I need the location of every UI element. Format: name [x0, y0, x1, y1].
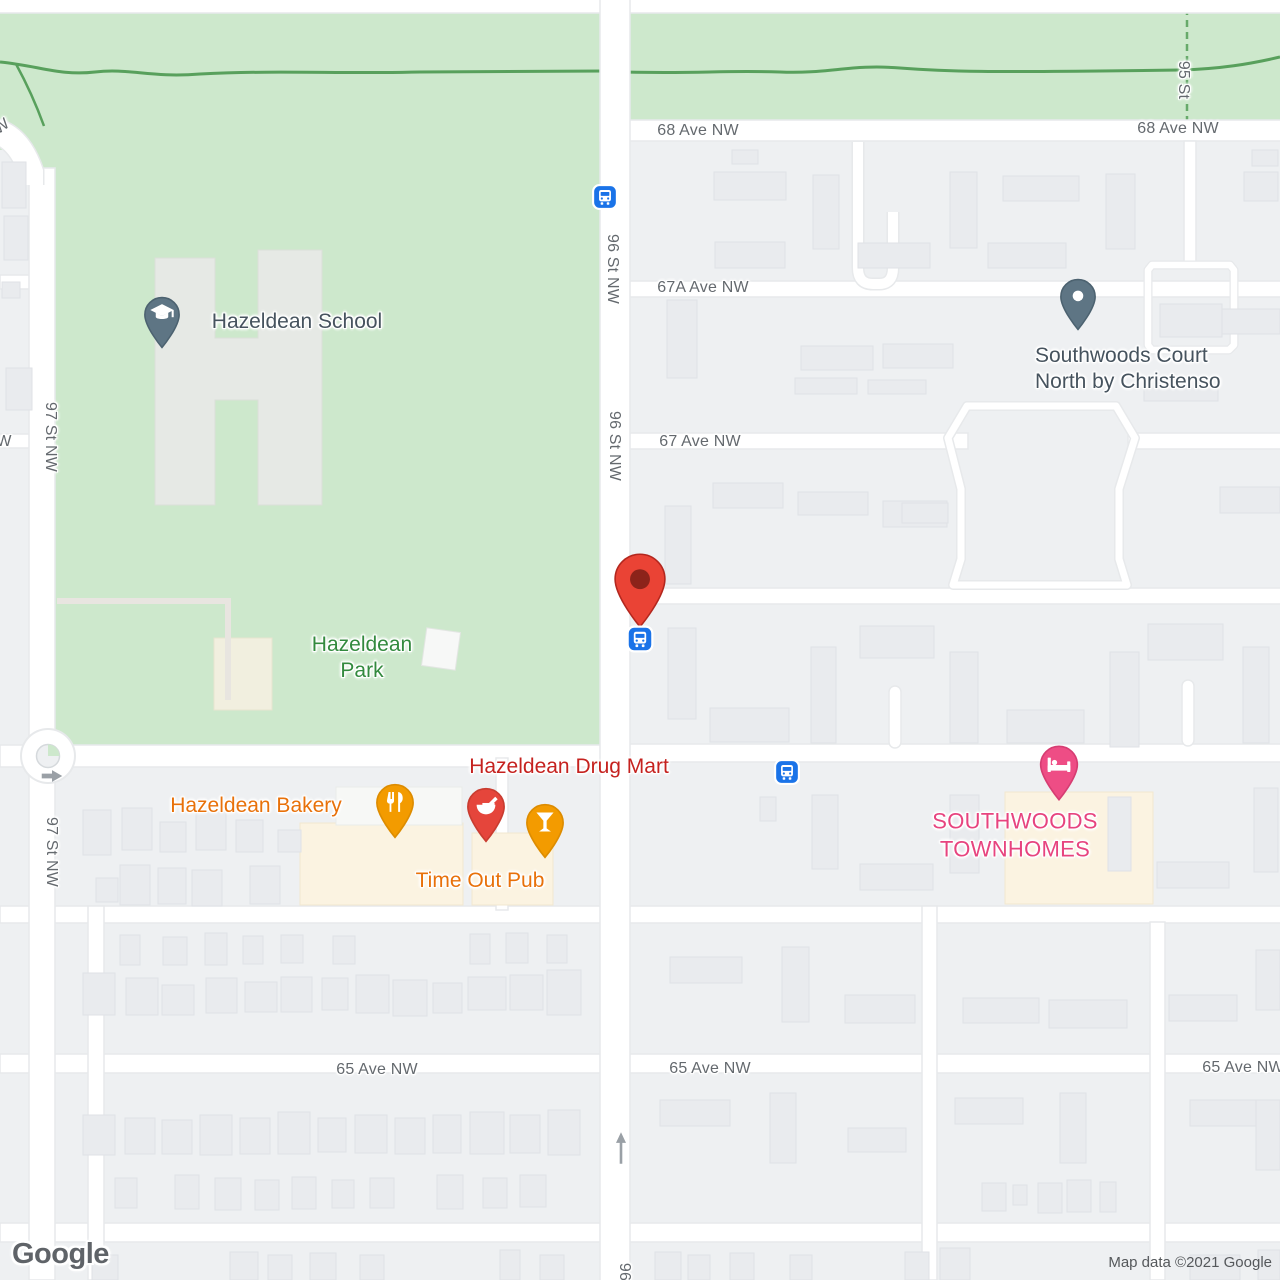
destination-marker-icon[interactable] — [613, 552, 668, 629]
one-way-north-arrow-icon — [615, 1131, 628, 1166]
street-label-65-ave-nw-right: 65 Ave NW — [1202, 1058, 1280, 1078]
roundabout-exit-arrow-icon — [40, 769, 65, 783]
pharmacy-pin-icon[interactable] — [466, 787, 506, 843]
street-label-68-ave-nw-left: 68 Ave NW — [657, 121, 739, 141]
street-label-96-st-nw-upper: 96 St NW — [602, 234, 622, 304]
poi-label-hazeldean-school[interactable]: Hazeldean School — [212, 309, 382, 335]
map-attribution: Map data ©2021 Google — [1108, 1254, 1272, 1271]
street-label-96-st-nw-lower: 96 St NW — [604, 411, 624, 481]
street-label-65-ave-nw-left: 65 Ave NW — [336, 1060, 418, 1080]
street-label-96-bottom: 96 — [614, 1263, 634, 1280]
bus-stop-icon-96st-mid[interactable] — [627, 626, 654, 653]
poi-label-hazeldean-park[interactable]: Hazeldean Park — [312, 632, 412, 685]
restaurant-pin-icon[interactable] — [375, 783, 415, 839]
street-label-97-st-nw-upper: 97 St NW — [40, 402, 60, 472]
bus-stop-icon-66ave[interactable] — [774, 759, 800, 785]
street-label-67a-ave-nw: 67A Ave NW — [657, 278, 749, 298]
street-label-65-ave-nw-mid: 65 Ave NW — [669, 1059, 751, 1079]
lodging-pin-icon[interactable] — [1039, 744, 1079, 802]
street-label-68-ave-nw-right: 68 Ave NW — [1137, 119, 1219, 139]
street-label-67-ave-nw: 67 Ave NW — [659, 432, 741, 452]
street-label-fragment-w-left: W — [0, 432, 12, 452]
generic-place-pin-icon[interactable] — [1059, 278, 1097, 331]
bus-stop-icon-96st-north[interactable] — [592, 184, 618, 210]
poi-label-time-out-pub[interactable]: Time Out Pub — [416, 868, 545, 894]
school-pin-icon[interactable] — [143, 296, 181, 349]
poi-label-hazeldean-drug-mart[interactable]: Hazeldean Drug Mart — [469, 754, 669, 780]
map-canvas[interactable]: 68 Ave NW68 Ave NW95 St96 St NW96 St NW9… — [0, 0, 1280, 1280]
street-label-95-st: 95 St — [1173, 61, 1193, 99]
poi-label-hazeldean-bakery[interactable]: Hazeldean Bakery — [170, 793, 342, 819]
street-label-97-st-nw-lower: 97 St NW — [41, 817, 61, 887]
google-logo[interactable]: Google — [12, 1238, 109, 1271]
bar-pin-icon[interactable] — [525, 803, 565, 859]
poi-label-southwoods-townhomes[interactable]: SOUTHWOODS TOWNHOMES — [932, 808, 1098, 863]
poi-label-southwoods-court-north[interactable]: Southwoods Court North by Christenso — [1035, 343, 1221, 396]
